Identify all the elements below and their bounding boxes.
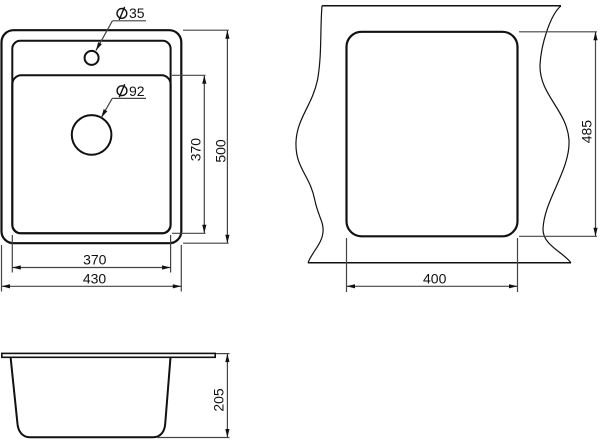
svg-text:370: 370	[188, 138, 204, 162]
svg-text:370: 370	[83, 252, 107, 268]
svg-text:35: 35	[129, 5, 145, 21]
svg-text:205: 205	[211, 388, 227, 412]
svg-text:400: 400	[423, 270, 447, 286]
svg-text:500: 500	[213, 139, 229, 163]
svg-text:430: 430	[83, 271, 107, 287]
svg-text:92: 92	[129, 83, 145, 99]
svg-text:485: 485	[579, 120, 595, 144]
